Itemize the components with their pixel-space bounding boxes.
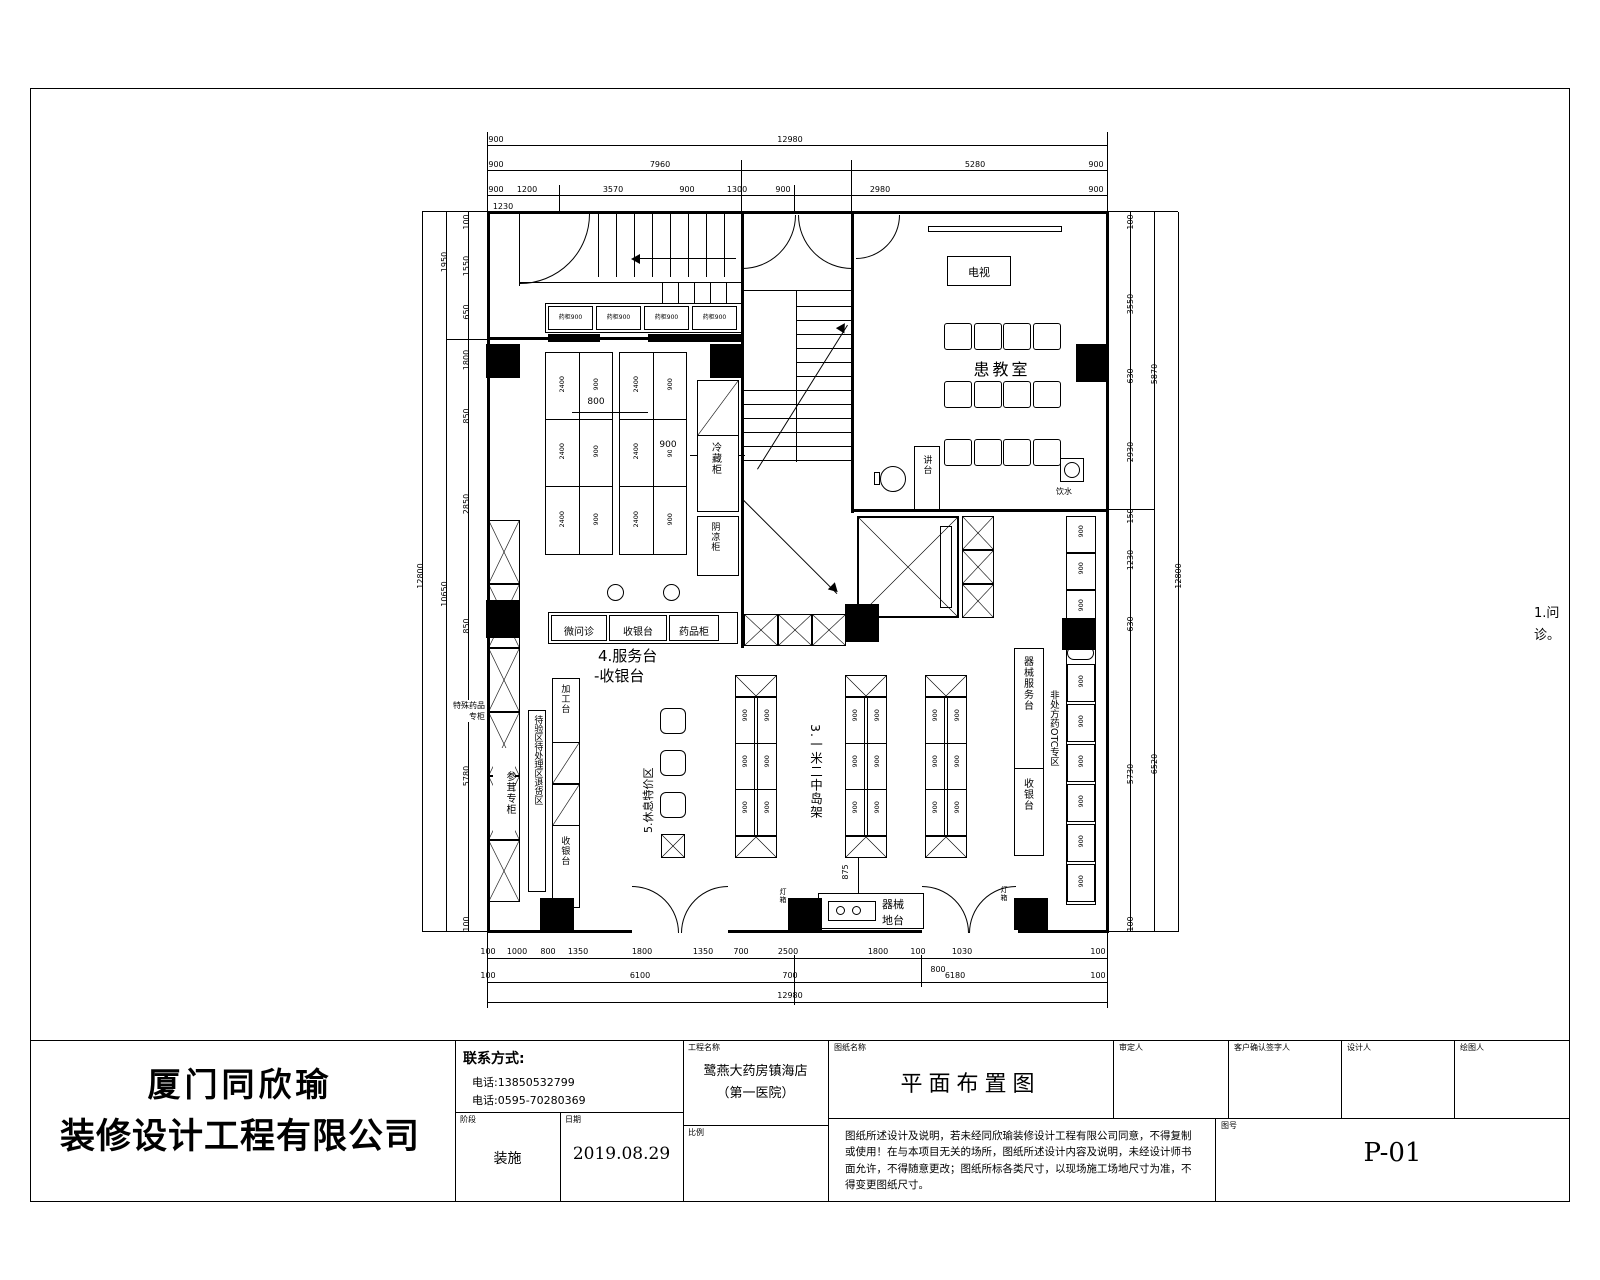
shelf-dim: 900 [852,703,859,727]
island-rail [864,697,865,836]
stair-step [724,213,725,277]
dim-line [488,958,1108,959]
chair [974,381,1002,408]
shelf-dim: 2400 [633,507,640,531]
stair-step [797,376,852,377]
shelf-dim: 2400 [559,372,566,396]
chair [974,439,1002,466]
service-label-1: 4.服务台 [598,645,694,666]
titleblock-line [828,1118,1570,1119]
lightbox-label: 灯箱 [779,888,787,904]
dim-label: 1030 [952,948,972,956]
island-rail [867,697,868,836]
chair [1033,323,1061,350]
dim-label: 630 [1127,609,1135,639]
dim-label: 12980 [777,136,802,144]
shelf-dim: 900 [742,703,749,727]
drawing-no: P-01 [1215,1138,1570,1168]
shelf-dim: 900 [1078,556,1085,580]
stair-step [797,460,852,461]
stair-step [797,334,852,335]
dim-ext [422,931,488,932]
shelf-dim: 900 [1078,789,1085,813]
shelf-dim: 900 [954,749,961,773]
counter-cell-weiwenzhen: 微问诊 [551,615,607,641]
dim-label: 12800 [417,561,425,591]
dim-ext [559,185,560,212]
dim-label: 800 [587,398,604,407]
island-rail [947,697,948,836]
dim-label: 850 [463,401,471,431]
gondola-divider [545,486,613,487]
chair [1003,323,1031,350]
dim-label: 5870 [1151,359,1159,389]
dim-label: 100 [480,972,495,980]
shelf-dim: 900 [1078,519,1085,543]
mat-cell [812,614,846,646]
wall-shelf-cell [488,648,520,712]
chair [1003,381,1031,408]
platform-label-2: 地台 [882,912,904,928]
titleblock-line [828,1040,829,1202]
shelf-dim: 900 [667,372,674,396]
chair [660,792,686,818]
chair [1003,439,1031,466]
stair-landing [742,290,852,291]
project-name-line1: 鹭燕大药房镇海店 [683,1060,828,1079]
stool [663,584,680,601]
island-cap [845,836,887,858]
service-label-2: -收银台 [594,665,690,686]
wall-shelf-cell [488,520,520,584]
dim-ext [446,339,488,340]
stair-step [742,404,797,405]
wall-note-line1: 特殊药品 [447,700,485,711]
column [540,898,574,930]
wall-shelf-cell [488,840,520,902]
stair-step [634,213,635,277]
island-cap [845,675,887,697]
shaft-cell [962,584,994,618]
dim-label: 100 [1127,909,1135,939]
chair [944,381,972,408]
drafter-label: 绘图人 [1460,1044,1484,1052]
stair-step [742,460,797,461]
dim-label: 1350 [693,948,713,956]
approver-label: 审定人 [1119,1044,1143,1052]
gondola-divider [653,352,654,555]
disclaimer-text: 图纸所述设计及说明，若未经同欣瑜装修设计工程有限公司同意，不得复制或使用！在与本… [845,1128,1201,1193]
date-value: 2019.08.29 [560,1144,683,1164]
shelf-dim: 900 [954,795,961,819]
dim-label: 100 [463,207,471,237]
process-counter-top-label: 加工台 [559,684,569,714]
dim-label: 1230 [1127,545,1135,575]
shelf-dim: 900 [764,749,771,773]
island-label: 3.一米二中岛架 [802,680,822,862]
dim-label: 100 [1090,972,1105,980]
dim-label: 100 [463,909,471,939]
dim-ext [921,955,922,987]
titleblock-line [1113,1040,1114,1118]
wall-thick [548,334,600,342]
dim-label: 100 [480,948,495,956]
margin-note-1: 1.问 [1534,602,1559,621]
island-rail [757,697,758,836]
column [1076,344,1108,382]
dim-line [858,858,859,894]
shelf-dim: 900 [874,703,881,727]
wall-cabinet: 药柜900 [548,306,593,330]
stair-step [797,320,852,321]
dim-label: 6520 [1151,749,1159,779]
process-counter-cell [552,784,580,826]
shelf-dim: 900 [932,749,939,773]
dim-ext [487,932,488,1008]
dim-label: 1800 [868,948,888,956]
rest-area-label: 5.休息特价区 [640,705,656,833]
titleblock-line [683,1125,828,1126]
tv-label: 电视 [948,257,1010,280]
door-leaf [519,214,520,286]
dim-ext [1108,211,1178,212]
dim-label: 1950 [441,247,449,277]
shelf-dim: 900 [593,372,600,396]
elevator-rail [940,526,952,608]
dim-label: 630 [1127,361,1135,391]
lectern-label: 讲台 [921,455,931,475]
dim-label: 800 [540,948,555,956]
tv-cabinet: 电视 [947,256,1011,286]
stair-step [797,348,852,349]
dim-line [488,170,1108,171]
chair [660,750,686,776]
counter-cell-medicine: 药品柜 [669,615,719,641]
dim-label: 650 [463,297,471,327]
dim-ext [422,211,488,212]
shelf-dim: 900 [932,795,939,819]
stair-step [797,446,852,447]
island-divider [925,743,967,744]
ginseng-label: 参茸专柜 [493,748,515,838]
dim-ext [851,160,852,212]
shelf-dim: 900 [764,795,771,819]
titleblock-line [455,1040,456,1202]
lectern: 讲台 [914,446,940,510]
column [486,344,520,378]
counter-cell-cashier: 收银台 [609,615,667,641]
dim-label: 800 [930,966,945,974]
wall-note: 特殊药品 专柜 [447,700,485,722]
cold-cabinet-label: 冷藏柜 [709,442,721,475]
chair [944,439,972,466]
gondola-divider [619,486,687,487]
dim-label: 2980 [870,186,890,194]
scale-icon [836,906,845,915]
dim-label: 2500 [778,948,798,956]
dim-label: 900 [1088,161,1103,169]
titleblock-line [30,1040,1570,1041]
water-dispenser-drum [1064,462,1080,478]
dim-label: 6180 [945,972,965,980]
dim-label: 100 [1127,207,1135,237]
shelf-dim: 900 [1078,749,1085,773]
titleblock-line [455,1112,683,1113]
titleblock-line [1454,1040,1455,1118]
dim-label: 5280 [965,161,985,169]
margin-note-2: 诊。 [1534,624,1560,643]
dim-label: 900 [488,186,503,194]
wall-cabinet: 药柜900 [596,306,641,330]
fan-icon [880,466,906,492]
dim-ext [1107,132,1108,212]
company-name-line1: 厦门同欣瑜 [60,1058,420,1106]
project-name-line2: （第一医院） [683,1082,828,1101]
chair [660,708,686,734]
dim-label: 7960 [650,161,670,169]
dim-label: 2930 [1127,437,1135,467]
water-label: 饮水 [1056,486,1072,497]
dim-label: 1800 [632,948,652,956]
gondola-divider [579,352,580,555]
dim-label: 900 [679,186,694,194]
dim-label: 900 [1088,186,1103,194]
stair-step [598,213,599,277]
stair-step [688,213,689,277]
dim-label: 3550 [1127,289,1135,319]
cool-cabinet-label: 阴凉柜 [709,522,719,552]
dim-label: 5780 [463,761,471,791]
island-cap [735,675,777,697]
equipment-counter-label: 器械服务台 [1021,656,1033,711]
stair-step [797,404,852,405]
drawing-name-label: 图纸名称 [834,1044,866,1052]
otc-zone-label: 非处方药OTC专区 [1047,690,1058,766]
island-divider [845,789,887,790]
dim-line [572,412,648,413]
stair-step [797,418,852,419]
wall-cabinet: 药柜900 [692,306,737,330]
shelf-dim: 2400 [559,439,566,463]
shelf-dim: 900 [874,795,881,819]
chair [974,323,1002,350]
dim-line [1154,212,1155,932]
island-rail [754,697,755,836]
column [1062,618,1096,650]
shelf-dim: 900 [954,703,961,727]
dim-line [488,982,1108,983]
platform-label-1: 器械 [882,896,904,912]
process-counter-bottom-label: 收银台 [559,836,569,866]
stair-step [616,213,617,277]
shelf-dim: 900 [764,703,771,727]
side-table [661,834,685,858]
dim-label: 1550 [463,251,471,281]
column [845,604,879,642]
dim-label: 150 [1127,501,1135,531]
dim-label: 900 [775,186,790,194]
wall-cabinet: 药柜900 [644,306,689,330]
island-rail [944,697,945,836]
island-divider [735,743,777,744]
wall [1106,211,1109,933]
column [710,344,744,378]
chair [944,323,972,350]
phone-2: 电话:0595-70280369 [472,1092,586,1108]
dim-line [446,212,447,932]
stair-step [742,432,797,433]
shaft-cell [962,516,994,550]
wall-note-line2: 专柜 [447,711,485,722]
shelf-dim: 900 [1078,709,1085,733]
qc-strip-label: 待验区待处理区退货区 [532,715,542,805]
shelf-dim: 900 [874,749,881,773]
stool [607,584,624,601]
titleblock-line [1228,1040,1229,1118]
dim-label: 100 [910,948,925,956]
dim-ext [794,185,795,212]
island-cap [735,836,777,858]
stair-arrow-head [631,254,640,264]
water-dispenser-icon [1060,458,1084,482]
shelf-dim: 2400 [633,439,640,463]
dim-label: 900 [659,441,676,450]
wall [741,211,744,648]
cold-cabinet-door [697,380,739,436]
stage-value: 装施 [455,1148,560,1168]
shelf-dim: 900 [1078,593,1085,617]
dim-label: 1230 [493,203,513,211]
wall-beam [928,226,1062,232]
dim-line [488,145,1108,146]
wall-thick [648,334,742,342]
company-name-line2: 装修设计工程有限公司 [40,1108,440,1159]
shelf-dim: 900 [742,795,749,819]
gondola-divider [545,419,613,420]
stair-step [670,213,671,277]
drawing-sheet: 900 12980 900 7960 5280 900 900 1200 357… [0,0,1600,1280]
dim-label: 6100 [630,972,650,980]
column [1014,898,1048,930]
stair-step [652,213,653,277]
shelf-dim: 900 [667,507,674,531]
mat-cell [744,614,778,646]
column [788,898,822,930]
stair-step [797,432,852,433]
counter-divider [1014,768,1044,769]
island-cap [925,675,967,697]
dim-label: 12800 [1175,561,1183,591]
dim-label: 5730 [1127,759,1135,789]
gondola-divider [619,419,687,420]
project-label: 工程名称 [688,1044,720,1052]
process-counter-cell [552,742,580,784]
dim-label: 850 [463,611,471,641]
dim-ext [1108,931,1178,932]
phone-1: 电话:13850532799 [472,1074,575,1090]
mat-cell [778,614,812,646]
dim-label: 10650 [441,579,449,609]
stair-arrow-line [640,258,736,259]
dim-line [488,1002,1108,1003]
island-divider [925,789,967,790]
dim-ext [1107,932,1108,1008]
dim-label: 3570 [603,186,623,194]
shelf-dim: 900 [932,703,939,727]
stair-step [742,390,797,391]
shelf-dim: 900 [1078,869,1085,893]
shelf-dim: 900 [742,749,749,773]
island-divider [735,789,777,790]
dim-label: 12980 [777,992,802,1000]
titleblock-line [1341,1040,1342,1118]
shelf-dim: 900 [1078,669,1085,693]
shelf-dim: 900 [852,795,859,819]
shelf-dim: 900 [593,507,600,531]
dim-label: 100 [1090,948,1105,956]
shelf-dim: 2400 [559,507,566,531]
qc-strip: 待验区待处理区退货区 [528,710,546,892]
dim-label: 1000 [507,948,527,956]
dim-label: 700 [782,972,797,980]
dim-label: 700 [733,948,748,956]
scale-label: 比例 [688,1129,704,1137]
stair-step [706,213,707,277]
stair-step [797,306,852,307]
stair-landing [520,282,742,283]
shelf-dim: 900 [593,439,600,463]
equipment-counter-label2: 收银台 [1021,778,1033,811]
dim-label: 1800 [463,345,471,375]
drawing-no-label: 图号 [1221,1122,1237,1130]
room-label: 患教室 [952,356,1052,380]
column [486,600,520,638]
stage-label: 阶段 [460,1116,476,1124]
fan-base [874,472,880,485]
dim-label: 900 [488,161,503,169]
shelf-dim: 900 [1078,829,1085,853]
scale-icon [852,906,861,915]
dim-label: 1350 [568,948,588,956]
dim-line [488,195,1108,196]
chair [1033,439,1061,466]
dim-ext [487,132,488,212]
client-sign-label: 客户确认签字人 [1234,1044,1290,1052]
dim-label: 2850 [463,489,471,519]
dim-label: 1300 [727,186,747,194]
dim-label: 1200 [517,186,537,194]
dim-label: 900 [488,136,503,144]
shelf-dim: 900 [852,749,859,773]
contact-label: 联系方式: [463,1048,525,1068]
designer-label: 设计人 [1347,1044,1371,1052]
drawing-name: 平面布置图 [828,1066,1113,1098]
dim-label: 875 [842,857,850,887]
wall [488,211,1109,214]
chair [1033,381,1061,408]
shelf-dim: 2400 [633,372,640,396]
date-label: 日期 [565,1116,581,1124]
wall [851,509,1109,512]
island-divider [845,743,887,744]
island-cap [925,836,967,858]
shaft-cell [962,550,994,584]
